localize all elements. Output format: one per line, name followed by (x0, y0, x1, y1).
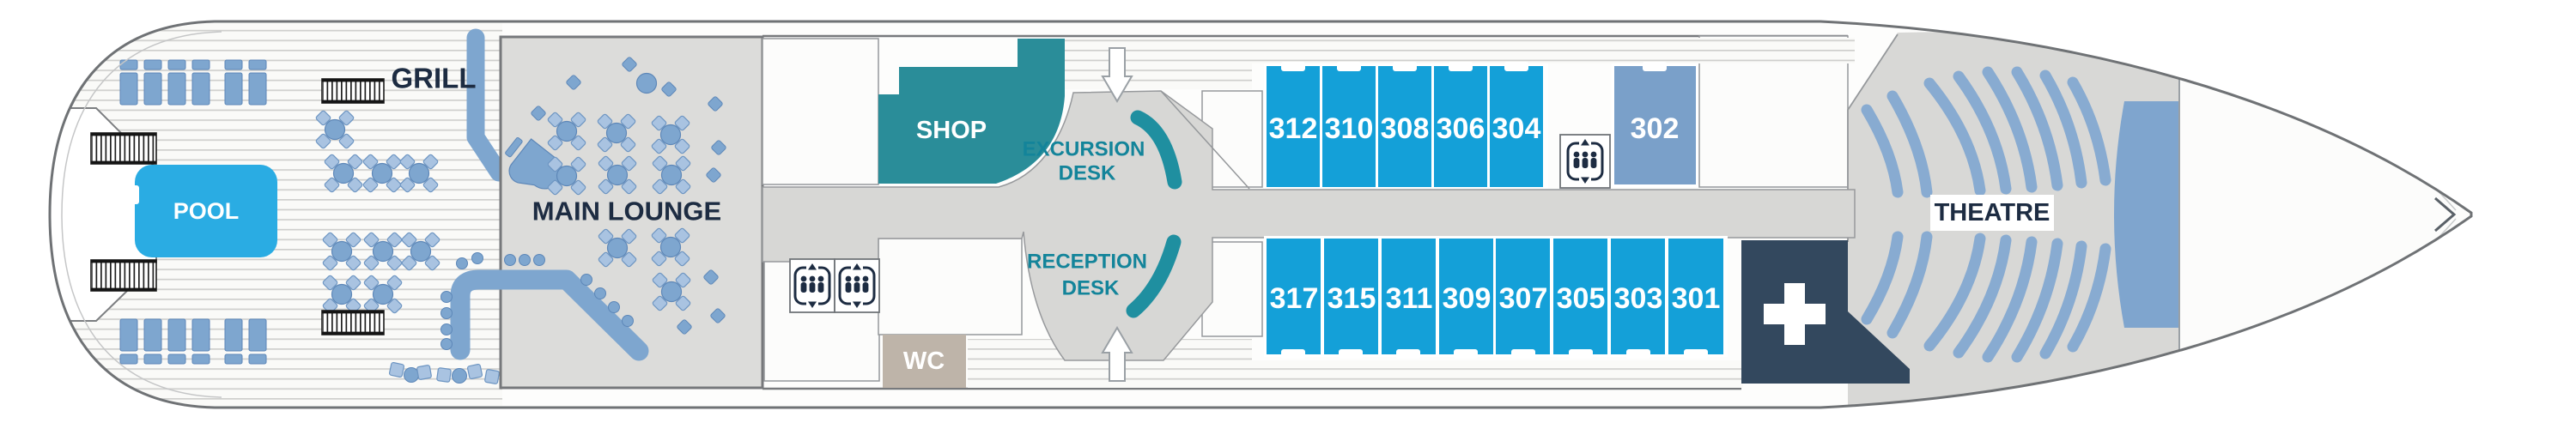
elevator-icon (1568, 139, 1602, 184)
sun-lounger (225, 319, 242, 364)
cabin-number: 315 (1327, 282, 1376, 315)
theatre-stage (2114, 101, 2179, 328)
promenade-planking (1252, 360, 1743, 388)
round-table (637, 74, 657, 94)
stairs-icon (91, 133, 156, 164)
sun-lounger (249, 319, 266, 364)
reception-desk-label: RECEPTION (1027, 251, 1147, 274)
main-lounge-label: MAIN LOUNGE (532, 196, 721, 227)
bar-stool (472, 253, 483, 264)
bench-seat (484, 369, 499, 384)
cabin-number: 310 (1325, 112, 1374, 145)
pool-ladder (131, 185, 139, 204)
deck-plan: POOL GRILL (0, 0, 2576, 429)
side-table (404, 368, 419, 383)
cabin-number: 309 (1443, 282, 1492, 315)
sun-lounger (192, 319, 210, 364)
elevator-icon (840, 263, 874, 308)
sun-lounger (144, 319, 161, 364)
bar-stool (441, 292, 453, 303)
cabin-number: 307 (1499, 282, 1548, 315)
sun-lounger (225, 60, 242, 105)
stairs-icon (322, 79, 384, 103)
shop-label: SHOP (916, 117, 987, 144)
sun-lounger (144, 60, 161, 105)
sun-lounger (120, 319, 137, 364)
cabin-number: 312 (1269, 112, 1318, 145)
bar-stool (519, 255, 531, 266)
promenade-planking (1065, 38, 1252, 89)
sun-lounger (120, 60, 137, 105)
bar-stool (441, 324, 453, 335)
excursion-desk-label: EXCURSION (1023, 138, 1145, 161)
theatre-label: THEATRE (1935, 199, 2050, 227)
elevator-icon (795, 263, 829, 308)
cabin-number: 308 (1381, 112, 1430, 145)
cabin-number: 301 (1672, 282, 1721, 315)
bar-stool (441, 339, 453, 350)
bar-stool (595, 288, 606, 299)
bench-seat (389, 362, 404, 378)
cabin-number: 304 (1492, 112, 1541, 145)
cabin-number: 303 (1614, 282, 1663, 315)
sun-lounger (168, 319, 185, 364)
bar-stool (581, 275, 592, 286)
pool-label: POOL (173, 198, 240, 224)
bar-stool (534, 255, 545, 266)
sun-lounger (192, 60, 210, 105)
promenade-planking (1252, 38, 1855, 63)
bar-stool (441, 308, 453, 319)
side-table (453, 369, 467, 384)
cabin-number: 302 (1631, 112, 1680, 145)
bench-seat (416, 365, 431, 379)
bench-seat (437, 368, 452, 383)
cabin-number: 317 (1270, 282, 1319, 315)
sun-lounger (168, 60, 185, 105)
bar-stool (457, 258, 468, 269)
bench-seat (467, 364, 483, 379)
stairs-icon (91, 260, 156, 291)
stairs-icon (322, 311, 384, 335)
foredeck (2179, 21, 2485, 408)
reception-desk-label: DESK (1062, 277, 1120, 300)
bar-stool (609, 302, 620, 313)
cabin-number: 311 (1386, 282, 1433, 315)
room (878, 239, 1022, 335)
sun-lounger (249, 60, 266, 105)
cabin-number: 306 (1437, 112, 1485, 145)
wc-label: WC (903, 347, 945, 375)
bar-stool (623, 316, 634, 327)
cabin-number: 305 (1557, 282, 1606, 315)
deck-plan-svg: POOL GRILL (0, 0, 2576, 429)
grill-label: GRILL (392, 63, 477, 94)
excursion-desk-label: DESK (1059, 162, 1116, 185)
bar-stool (505, 255, 516, 266)
room (762, 39, 878, 184)
